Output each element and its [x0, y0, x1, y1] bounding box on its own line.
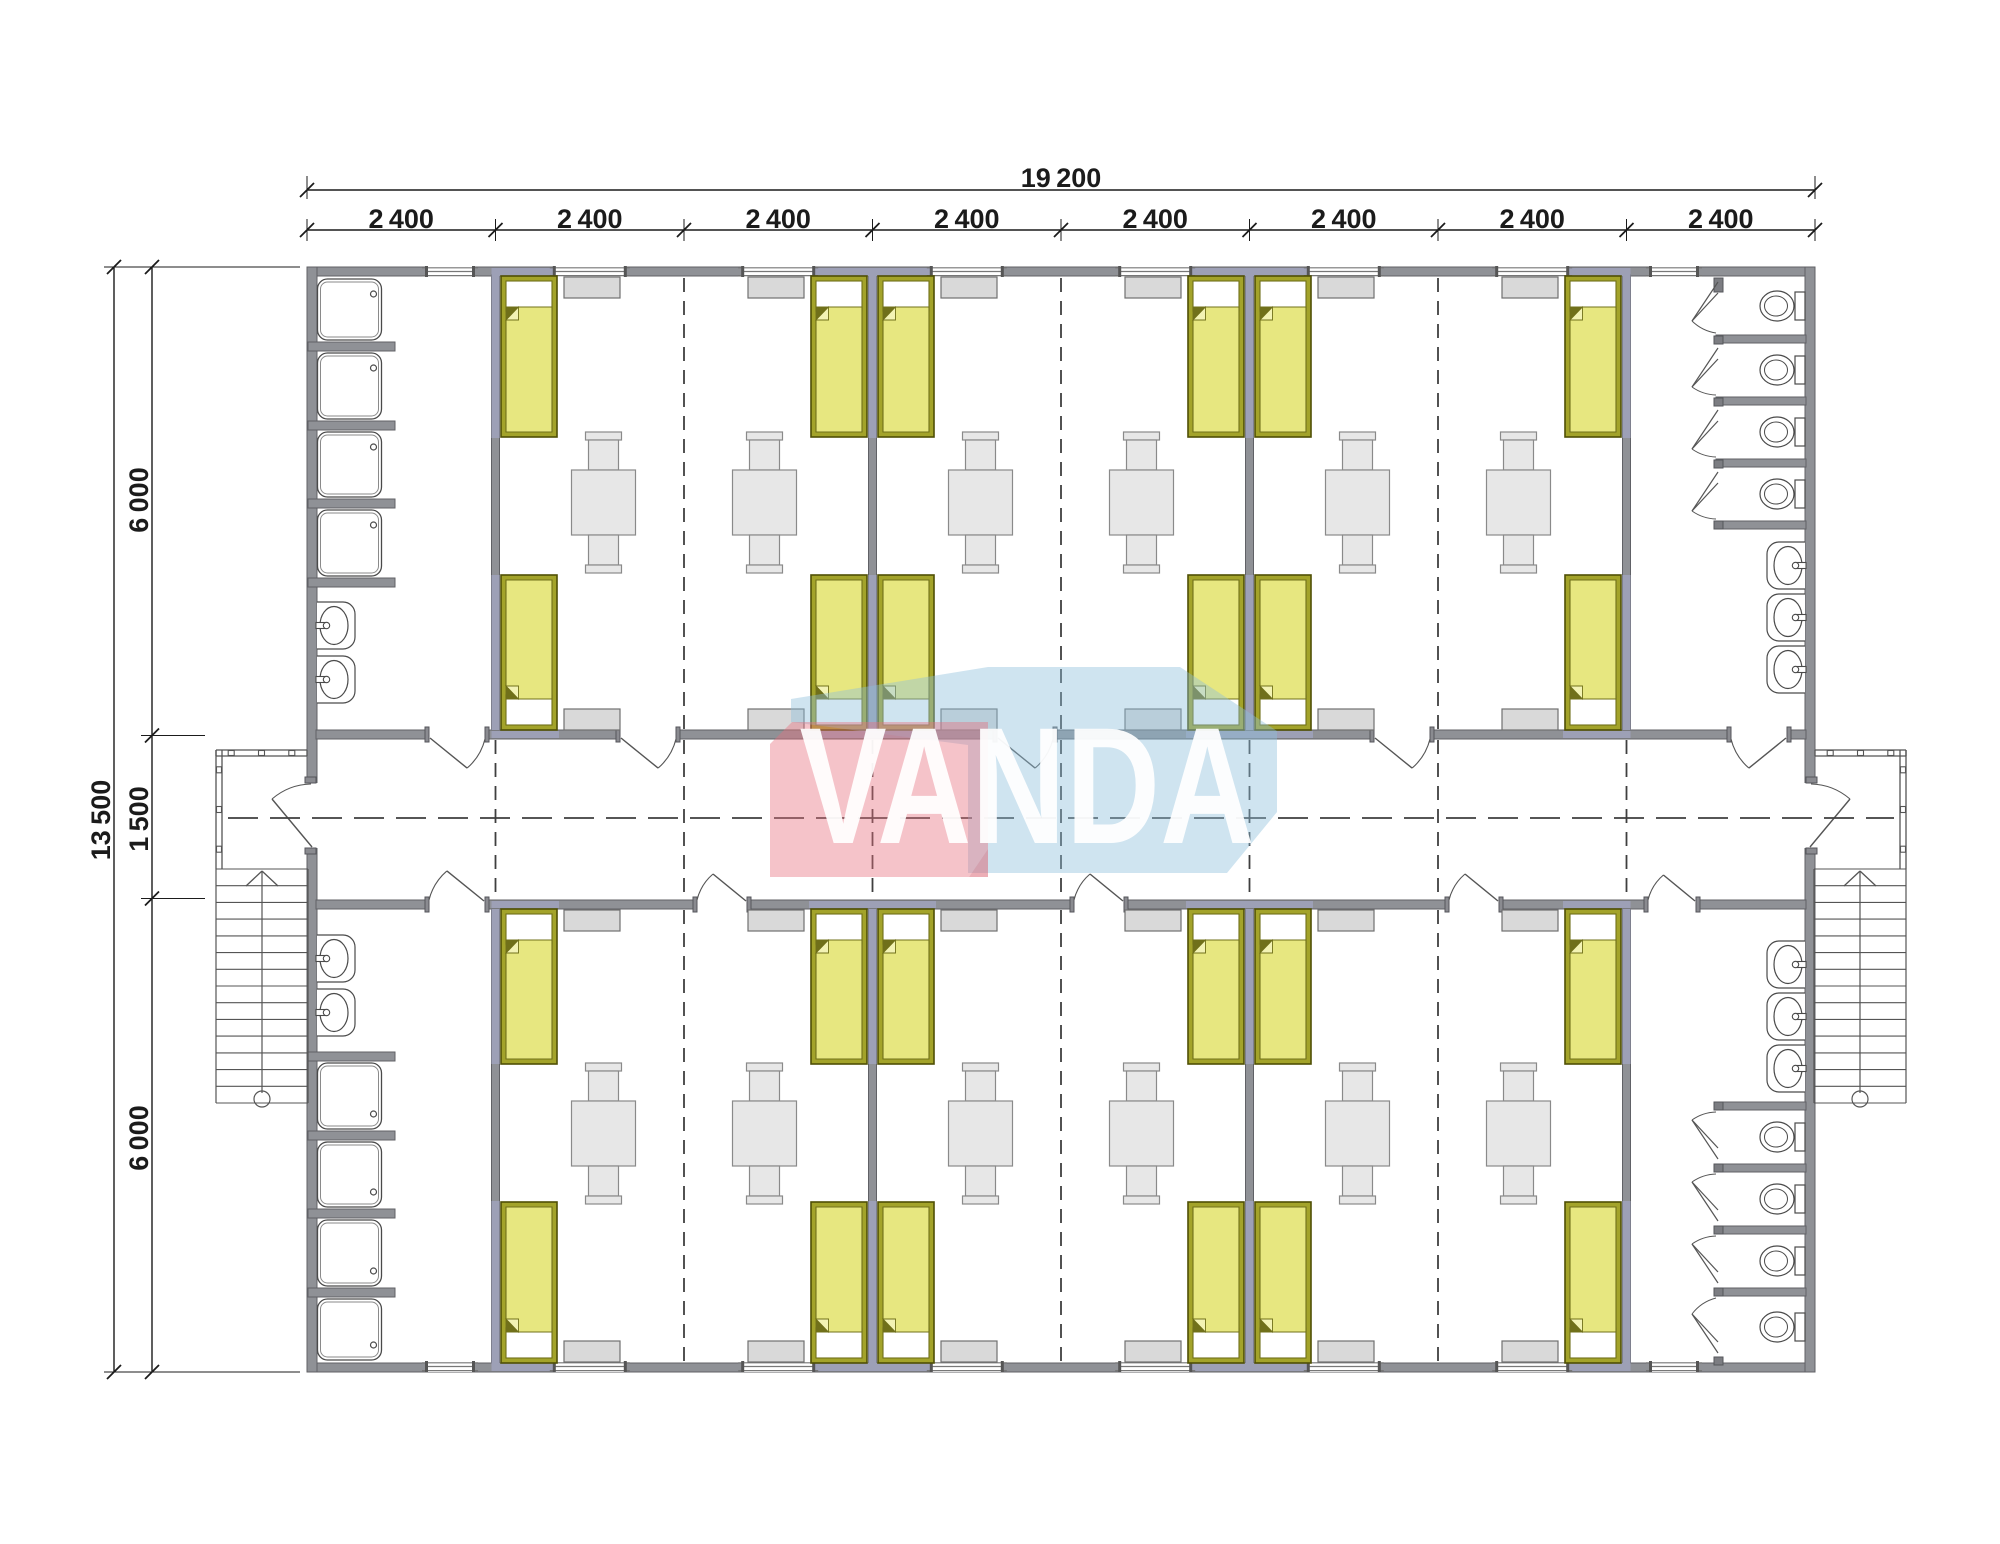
svg-text:2 400: 2 400: [1122, 204, 1187, 234]
svg-text:2 400: 2 400: [1499, 204, 1564, 234]
svg-text:2 400: 2 400: [557, 204, 622, 234]
svg-text:19 200: 19 200: [1021, 163, 1102, 193]
svg-text:2 400: 2 400: [934, 204, 999, 234]
svg-text:6 000: 6 000: [124, 1105, 154, 1170]
svg-text:6 000: 6 000: [124, 467, 154, 532]
svg-text:13 500: 13 500: [86, 780, 116, 861]
svg-text:2 400: 2 400: [1311, 204, 1376, 234]
svg-text:2 400: 2 400: [745, 204, 810, 234]
svg-text:VANDA: VANDA: [800, 694, 1255, 879]
svg-text:1 500: 1 500: [124, 786, 154, 851]
svg-text:2 400: 2 400: [368, 204, 433, 234]
svg-text:2 400: 2 400: [1688, 204, 1753, 234]
